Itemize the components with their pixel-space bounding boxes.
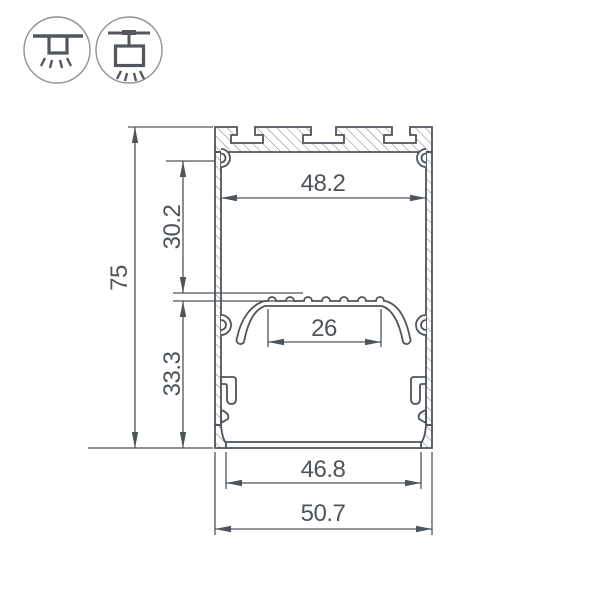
dimension-overall-height: 75 xyxy=(88,127,213,448)
pendant-mount-light-icon xyxy=(96,17,162,83)
profile-top-plate xyxy=(215,127,432,152)
dimension-bottom-cavity-height: 33.3 xyxy=(159,301,186,448)
technical-drawing-page: 48.2 30.2 75 26 33.3 xyxy=(0,0,600,600)
wall-hook-right xyxy=(411,377,426,404)
dimension-label: 75 xyxy=(106,265,133,291)
wall-hook-left xyxy=(221,377,236,404)
light-rays-icon xyxy=(117,71,144,81)
dimension-inner-top-width: 48.2 xyxy=(221,170,426,201)
light-rays-icon xyxy=(41,58,71,68)
dimension-label: 46.8 xyxy=(301,456,346,483)
profile-tooth-left xyxy=(221,410,228,423)
icon-circle xyxy=(24,17,90,83)
dimension-bottom-opening-width: 46.8 xyxy=(226,452,421,489)
dimension-label: 26 xyxy=(311,315,337,342)
dimension-label: 50.7 xyxy=(301,500,346,527)
dimension-label: 30.2 xyxy=(159,204,186,249)
surface-mount-light-icon xyxy=(24,17,90,83)
dimension-led-shelf-width: 26 xyxy=(268,309,381,347)
pendant-mount-glyph xyxy=(108,30,150,81)
surface-mount-glyph xyxy=(33,36,83,68)
dimension-label: 33.3 xyxy=(159,351,186,396)
profile-cross-section-drawing: 48.2 30.2 75 26 33.3 xyxy=(0,0,600,600)
diffuser-plate xyxy=(226,442,421,448)
profile-tooth-right xyxy=(419,410,426,423)
profile-foot-right xyxy=(421,425,432,448)
dimension-label: 48.2 xyxy=(301,170,346,197)
profile-foot-left xyxy=(215,425,226,448)
icon-circle xyxy=(96,17,162,83)
dimension-top-cavity-height: 30.2 xyxy=(159,161,303,301)
wall-hooks xyxy=(221,377,426,404)
